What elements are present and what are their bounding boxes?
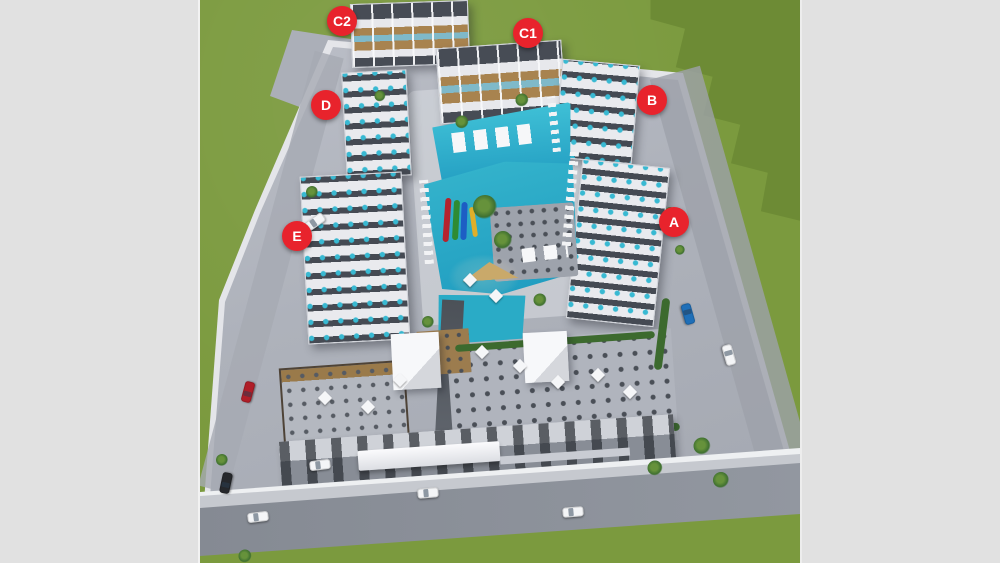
water-slide-green [452, 200, 460, 240]
viewer-background: { "view": { "background_color": "#e1e1e1… [0, 0, 1000, 563]
masterplan-render: C2 C1 D B E A [198, 0, 802, 563]
umbrella-canopy [552, 376, 564, 388]
palm-tree [694, 438, 711, 455]
umbrella-canopy [394, 374, 406, 386]
building-marker-c2[interactable]: C2 [327, 6, 357, 36]
umbrella-canopy [464, 274, 476, 286]
building-marker-label: C1 [519, 26, 537, 40]
palm-tree [239, 550, 252, 563]
umbrella-canopy [362, 401, 374, 413]
palm-tree [534, 294, 547, 307]
palm-tree [675, 245, 685, 255]
building-block-e [300, 171, 411, 344]
palm-tree [494, 231, 512, 249]
building-marker-label: A [669, 215, 679, 229]
umbrella-canopy [592, 369, 604, 381]
building-marker-label: D [321, 98, 331, 112]
palm-tree [216, 454, 228, 466]
umbrella-canopy [624, 386, 636, 398]
building-marker-a[interactable]: A [659, 207, 689, 237]
palm-tree [713, 472, 729, 488]
car-white [562, 506, 584, 518]
umbrella-canopy [476, 346, 488, 358]
building-block-d [341, 69, 411, 178]
palm-tree [648, 461, 663, 476]
palm-tree [516, 94, 529, 107]
building-marker-d[interactable]: D [311, 90, 341, 120]
palm-tree [473, 195, 497, 219]
water-slide-red [442, 198, 451, 242]
car-white [417, 487, 439, 499]
palm-tree [375, 91, 386, 102]
building-marker-label: C2 [333, 14, 351, 28]
palm-tree [306, 186, 318, 198]
umbrella-canopy [319, 392, 331, 404]
palm-tree [422, 316, 434, 328]
building-marker-label: E [292, 229, 301, 243]
water-slide-blue [460, 202, 467, 240]
building-block-a [566, 159, 670, 327]
building-marker-label: B [647, 93, 657, 107]
umbrella-canopy [490, 290, 502, 302]
building-marker-b[interactable]: B [637, 85, 667, 115]
umbrella-canopy [514, 360, 526, 372]
palm-tree [456, 116, 469, 129]
building-marker-e[interactable]: E [282, 221, 312, 251]
building-marker-c1[interactable]: C1 [513, 18, 543, 48]
